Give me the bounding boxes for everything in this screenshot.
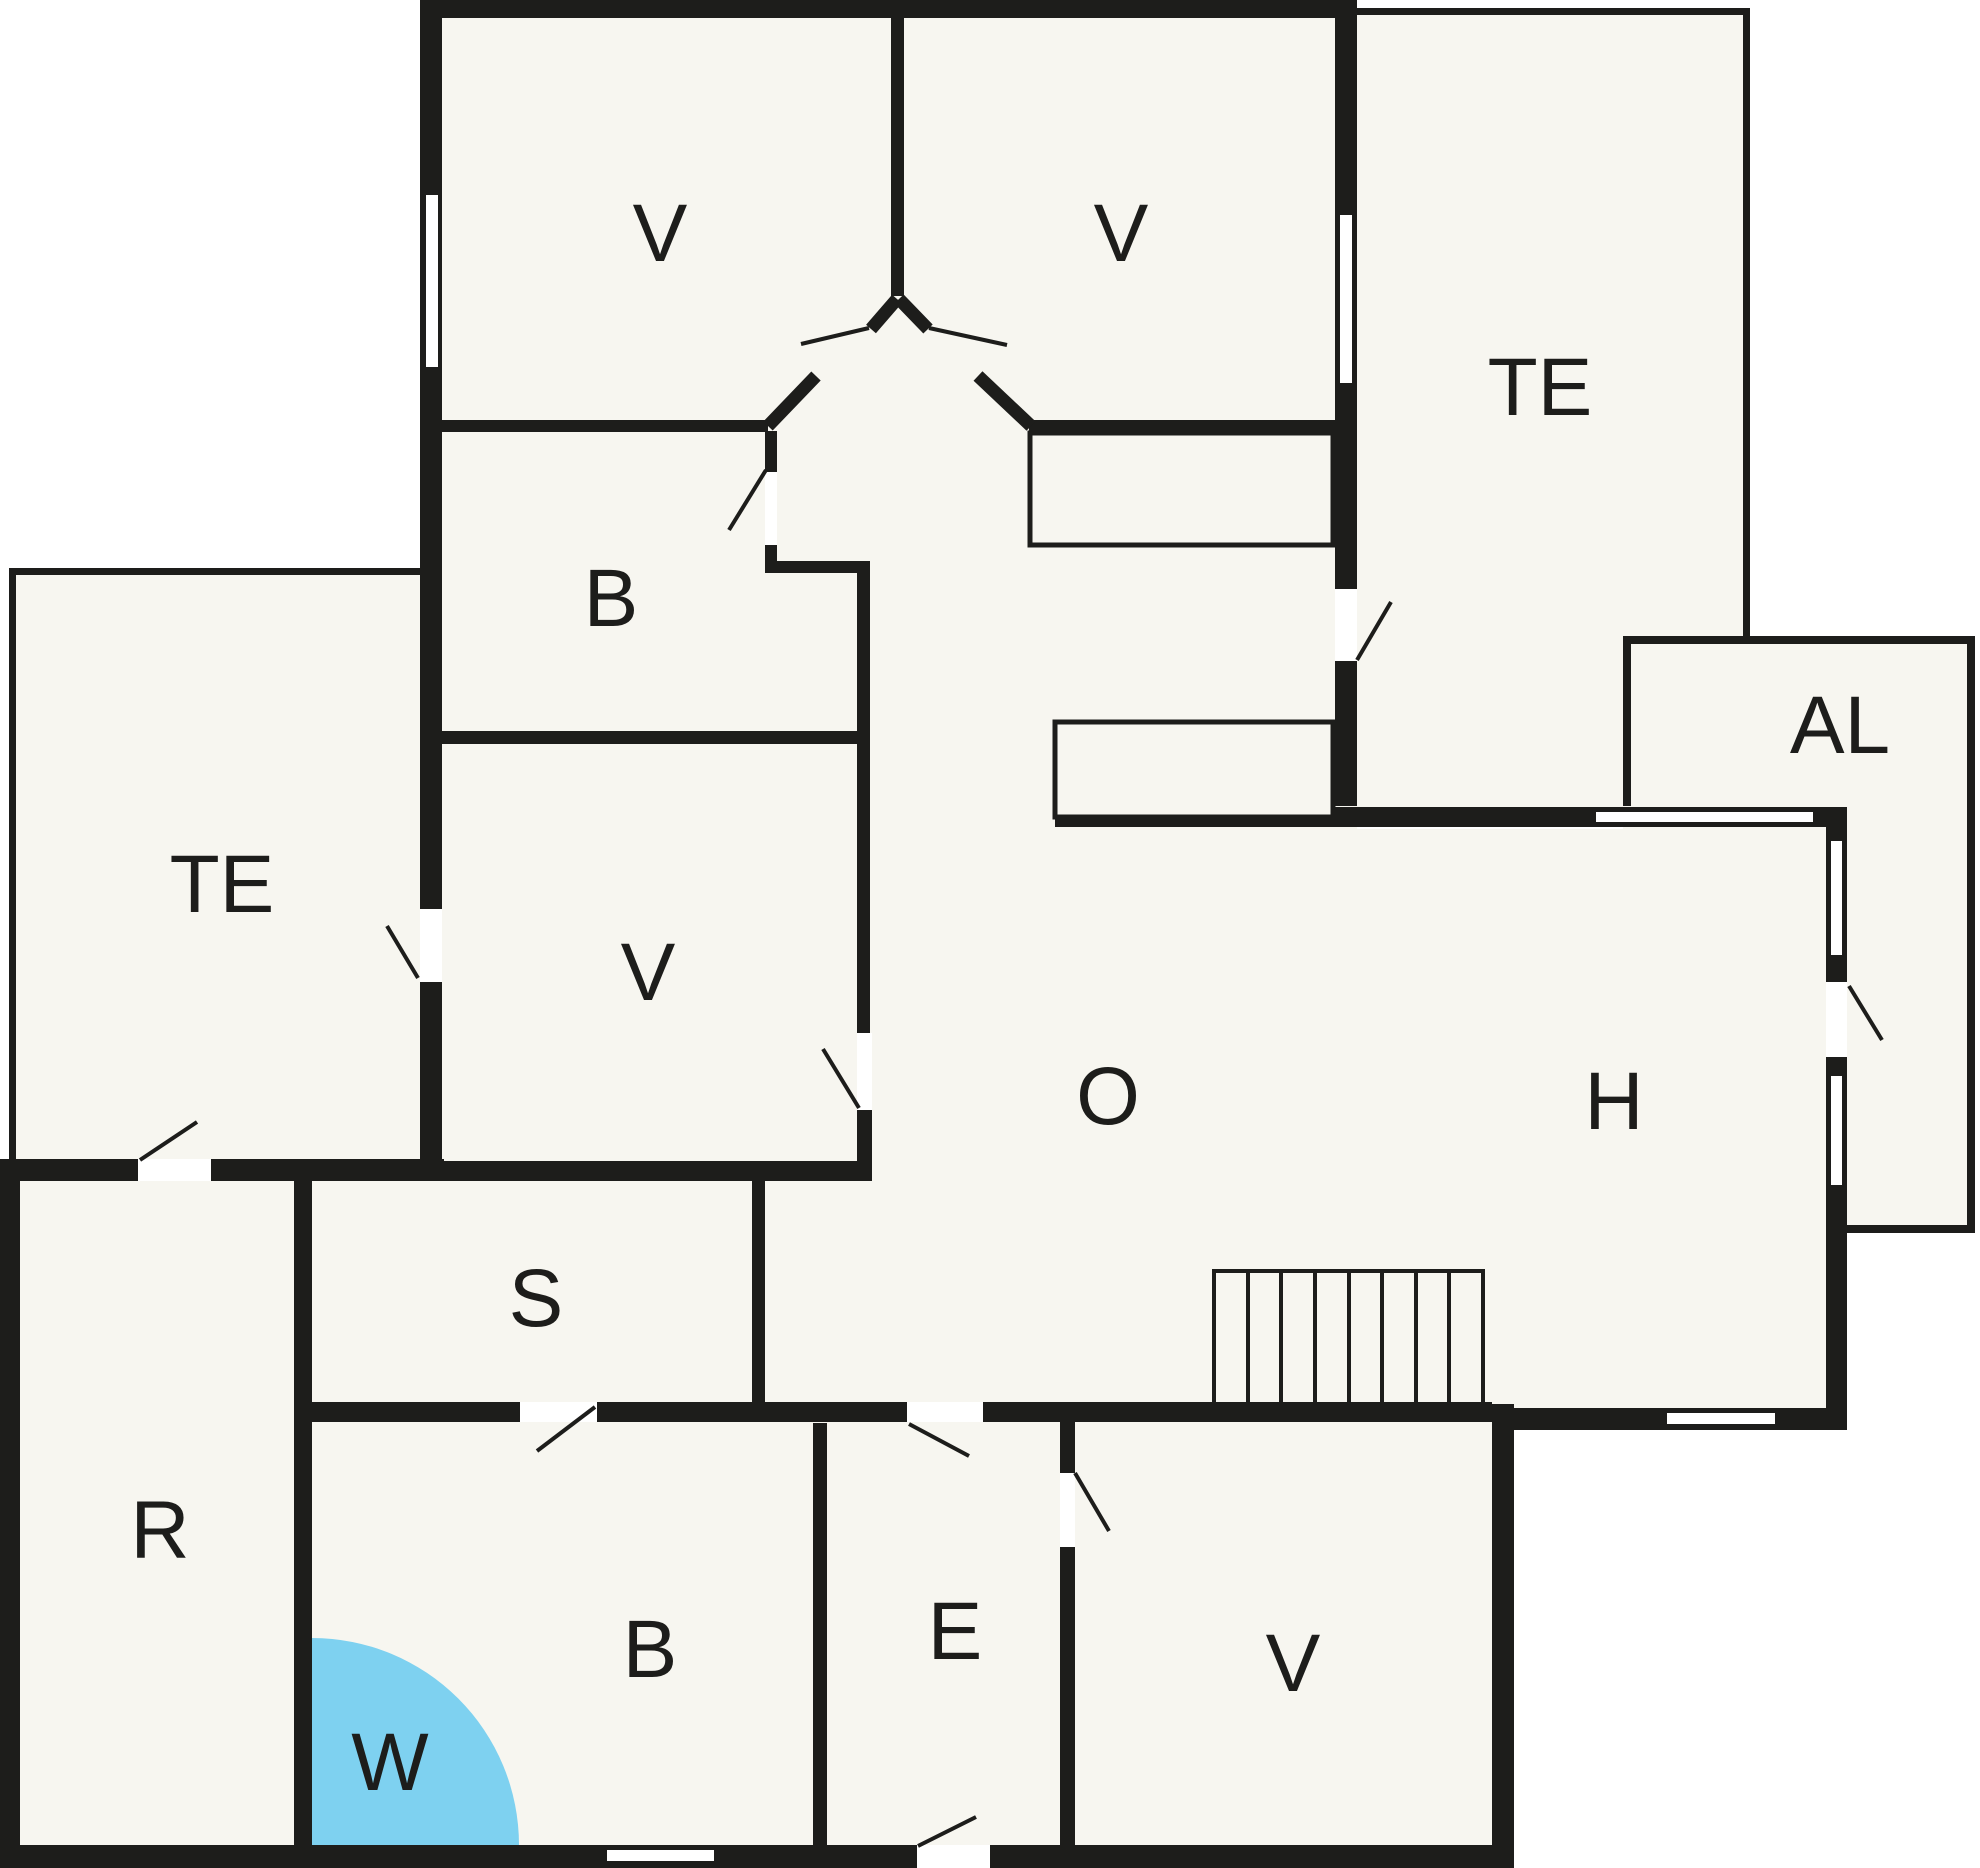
svg-text:V: V bbox=[633, 188, 688, 279]
svg-text:W: W bbox=[351, 1717, 429, 1808]
svg-text:AL: AL bbox=[1790, 680, 1890, 771]
svg-text:H: H bbox=[1584, 1056, 1643, 1147]
svg-text:V: V bbox=[1094, 188, 1149, 279]
svg-text:V: V bbox=[621, 927, 676, 1018]
svg-text:B: B bbox=[623, 1604, 678, 1695]
svg-text:TE: TE bbox=[170, 839, 275, 930]
svg-text:R: R bbox=[130, 1485, 189, 1576]
svg-text:TE: TE bbox=[1488, 342, 1593, 433]
svg-text:V: V bbox=[1266, 1618, 1321, 1709]
svg-text:O: O bbox=[1076, 1051, 1140, 1142]
svg-text:E: E bbox=[928, 1586, 983, 1677]
svg-text:S: S bbox=[509, 1253, 564, 1344]
svg-text:B: B bbox=[584, 553, 639, 644]
